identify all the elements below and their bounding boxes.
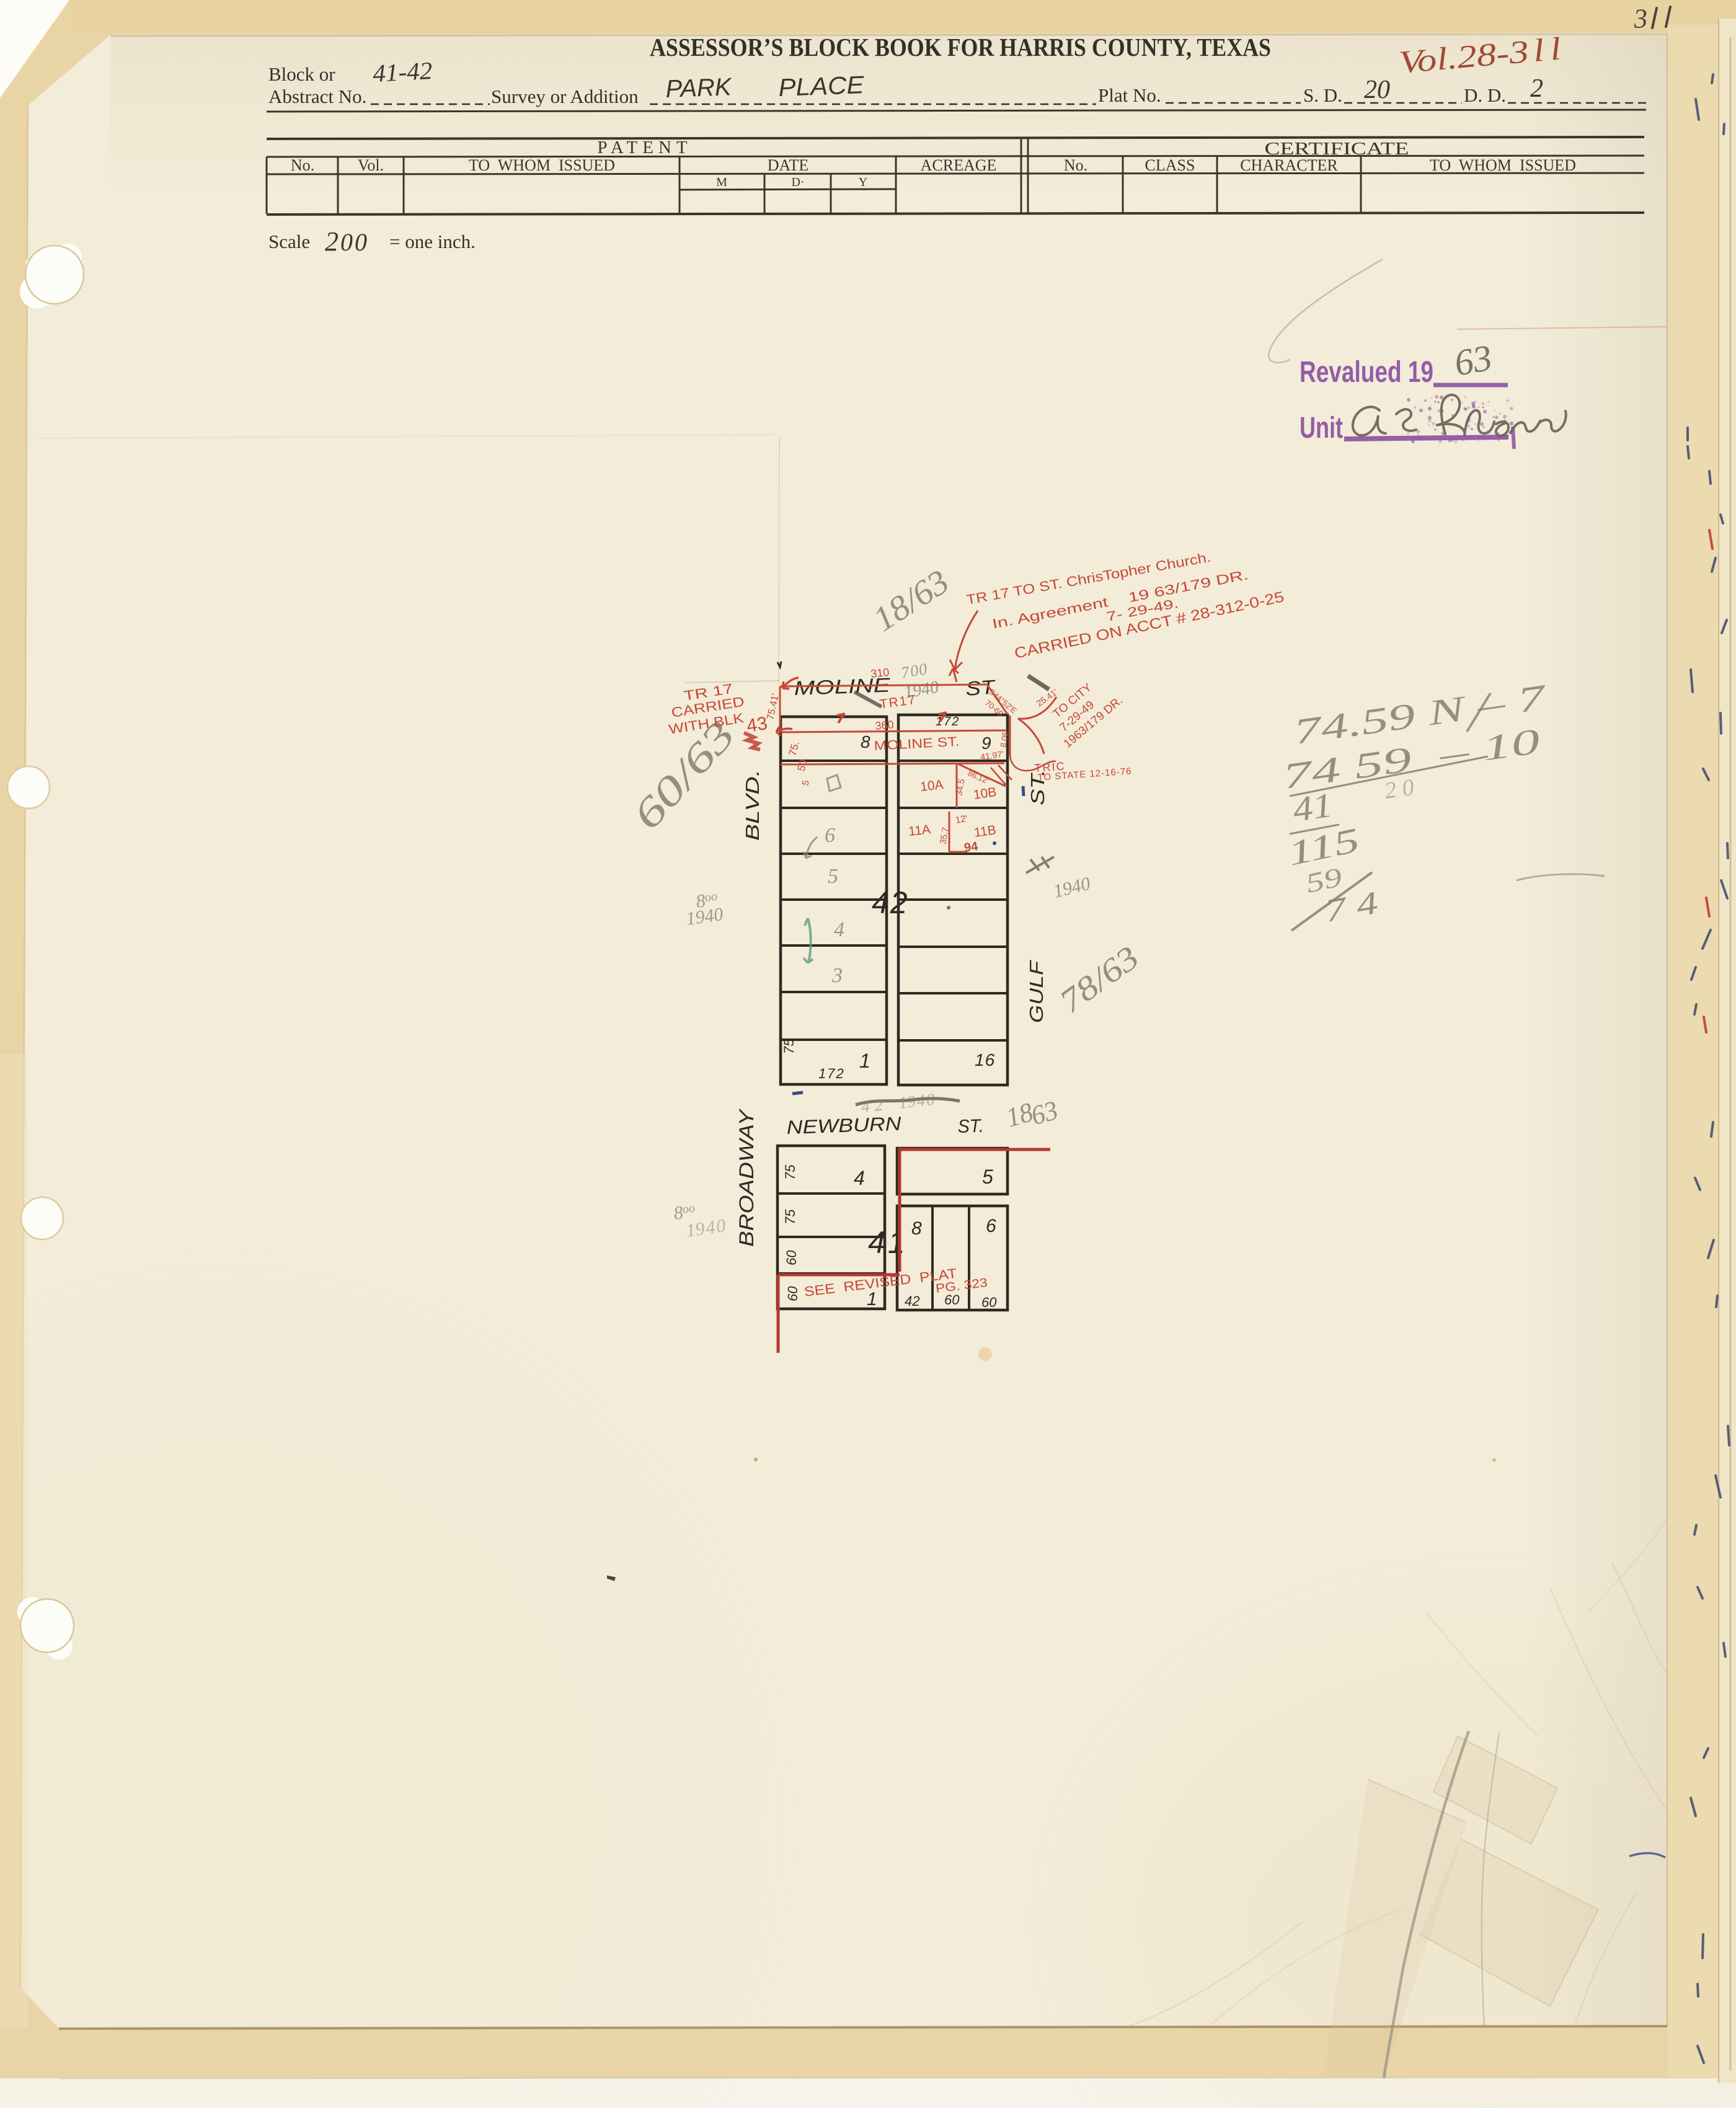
svg-text:TO WHOM ISSUED: TO WHOM ISSUED (469, 156, 615, 174)
svg-text:1: 1 (867, 1289, 877, 1309)
svg-text:NEWBURN: NEWBURN (786, 1113, 902, 1138)
svg-text:172: 172 (936, 715, 960, 728)
svg-text:ST.: ST. (957, 1116, 984, 1137)
svg-text:PARK: PARK (665, 73, 733, 103)
svg-text:75: 75 (782, 1209, 798, 1224)
svg-text:9: 9 (981, 733, 991, 753)
svg-text:Scale: Scale (268, 231, 310, 252)
svg-text:BROADWAY: BROADWAY (735, 1108, 758, 1247)
svg-text:Block or: Block or (268, 63, 335, 85)
svg-text:12': 12' (955, 813, 968, 826)
svg-text:BLVD.: BLVD. (742, 769, 763, 841)
svg-text:360: 360 (875, 718, 895, 732)
svg-text:200: 200 (325, 226, 369, 257)
svg-text:41: 41 (1290, 786, 1335, 830)
svg-text:75: 75 (781, 1038, 797, 1054)
svg-text:5: 5 (828, 865, 838, 888)
svg-text:63: 63 (1451, 337, 1495, 383)
svg-text:D. D.: D. D. (1464, 84, 1506, 106)
svg-text:8: 8 (911, 1218, 922, 1239)
svg-text:1: 1 (859, 1050, 870, 1072)
svg-text:GULF: GULF (1025, 960, 1047, 1023)
svg-text:Unit: Unit (1300, 412, 1343, 445)
svg-text:172: 172 (818, 1066, 845, 1081)
svg-text:6: 6 (986, 1216, 996, 1236)
svg-text:2: 2 (1530, 74, 1543, 103)
svg-text:= one inch.: = one inch. (389, 231, 476, 252)
svg-text:M: M (716, 175, 727, 189)
svg-text:20: 20 (1364, 76, 1390, 104)
svg-text:41-42: 41-42 (372, 56, 433, 87)
svg-text:D·: D· (791, 175, 804, 189)
svg-text:No.: No. (291, 156, 314, 174)
svg-text:ACREAGE: ACREAGE (921, 156, 997, 174)
svg-text:Plat No.: Plat No. (1098, 84, 1161, 106)
svg-text:42: 42 (905, 1293, 919, 1309)
svg-text:60: 60 (981, 1295, 997, 1310)
svg-text:8: 8 (861, 732, 870, 751)
svg-text:16: 16 (975, 1050, 995, 1069)
svg-text:42: 42 (872, 885, 909, 920)
svg-text:3: 3 (831, 964, 843, 987)
svg-text:CHARACTER: CHARACTER (1240, 156, 1338, 174)
svg-text:6: 6 (825, 824, 835, 847)
svg-text:Abstract No.: Abstract No. (268, 86, 366, 107)
svg-text:TO WHOM ISSUED: TO WHOM ISSUED (1430, 156, 1576, 174)
svg-text:PATENT: PATENT (597, 138, 692, 157)
svg-text:310: 310 (870, 666, 890, 680)
svg-text:CLASS: CLASS (1145, 156, 1195, 174)
svg-text:60: 60 (785, 1286, 800, 1301)
svg-text:4: 4 (854, 1167, 865, 1189)
svg-text:S. D.: S. D. (1303, 84, 1342, 106)
svg-text:No.: No. (1064, 156, 1087, 174)
svg-text:ASSESSOR’S BLOCK BOOK FOR HARR: ASSESSOR’S BLOCK BOOK FOR HARRIS COUNTY,… (650, 33, 1271, 61)
svg-text:60: 60 (784, 1250, 799, 1265)
svg-text:4: 4 (834, 918, 844, 941)
svg-text:11A: 11A (908, 822, 931, 839)
svg-text:Survey or Addition: Survey or Addition (491, 86, 639, 107)
svg-text:Y: Y (859, 175, 867, 189)
svg-text:10A: 10A (919, 777, 944, 794)
svg-text:3: 3 (1632, 3, 1649, 34)
svg-text:DATE: DATE (768, 156, 808, 174)
svg-text:75: 75 (782, 1164, 798, 1180)
svg-text:5: 5 (982, 1166, 993, 1188)
svg-text:2 0: 2 0 (1383, 774, 1415, 804)
svg-text:94: 94 (963, 839, 980, 855)
svg-text:PLACE: PLACE (778, 71, 866, 102)
svg-text:Vol.: Vol. (358, 156, 384, 174)
svg-text:Revalued 19: Revalued 19 (1300, 356, 1433, 389)
